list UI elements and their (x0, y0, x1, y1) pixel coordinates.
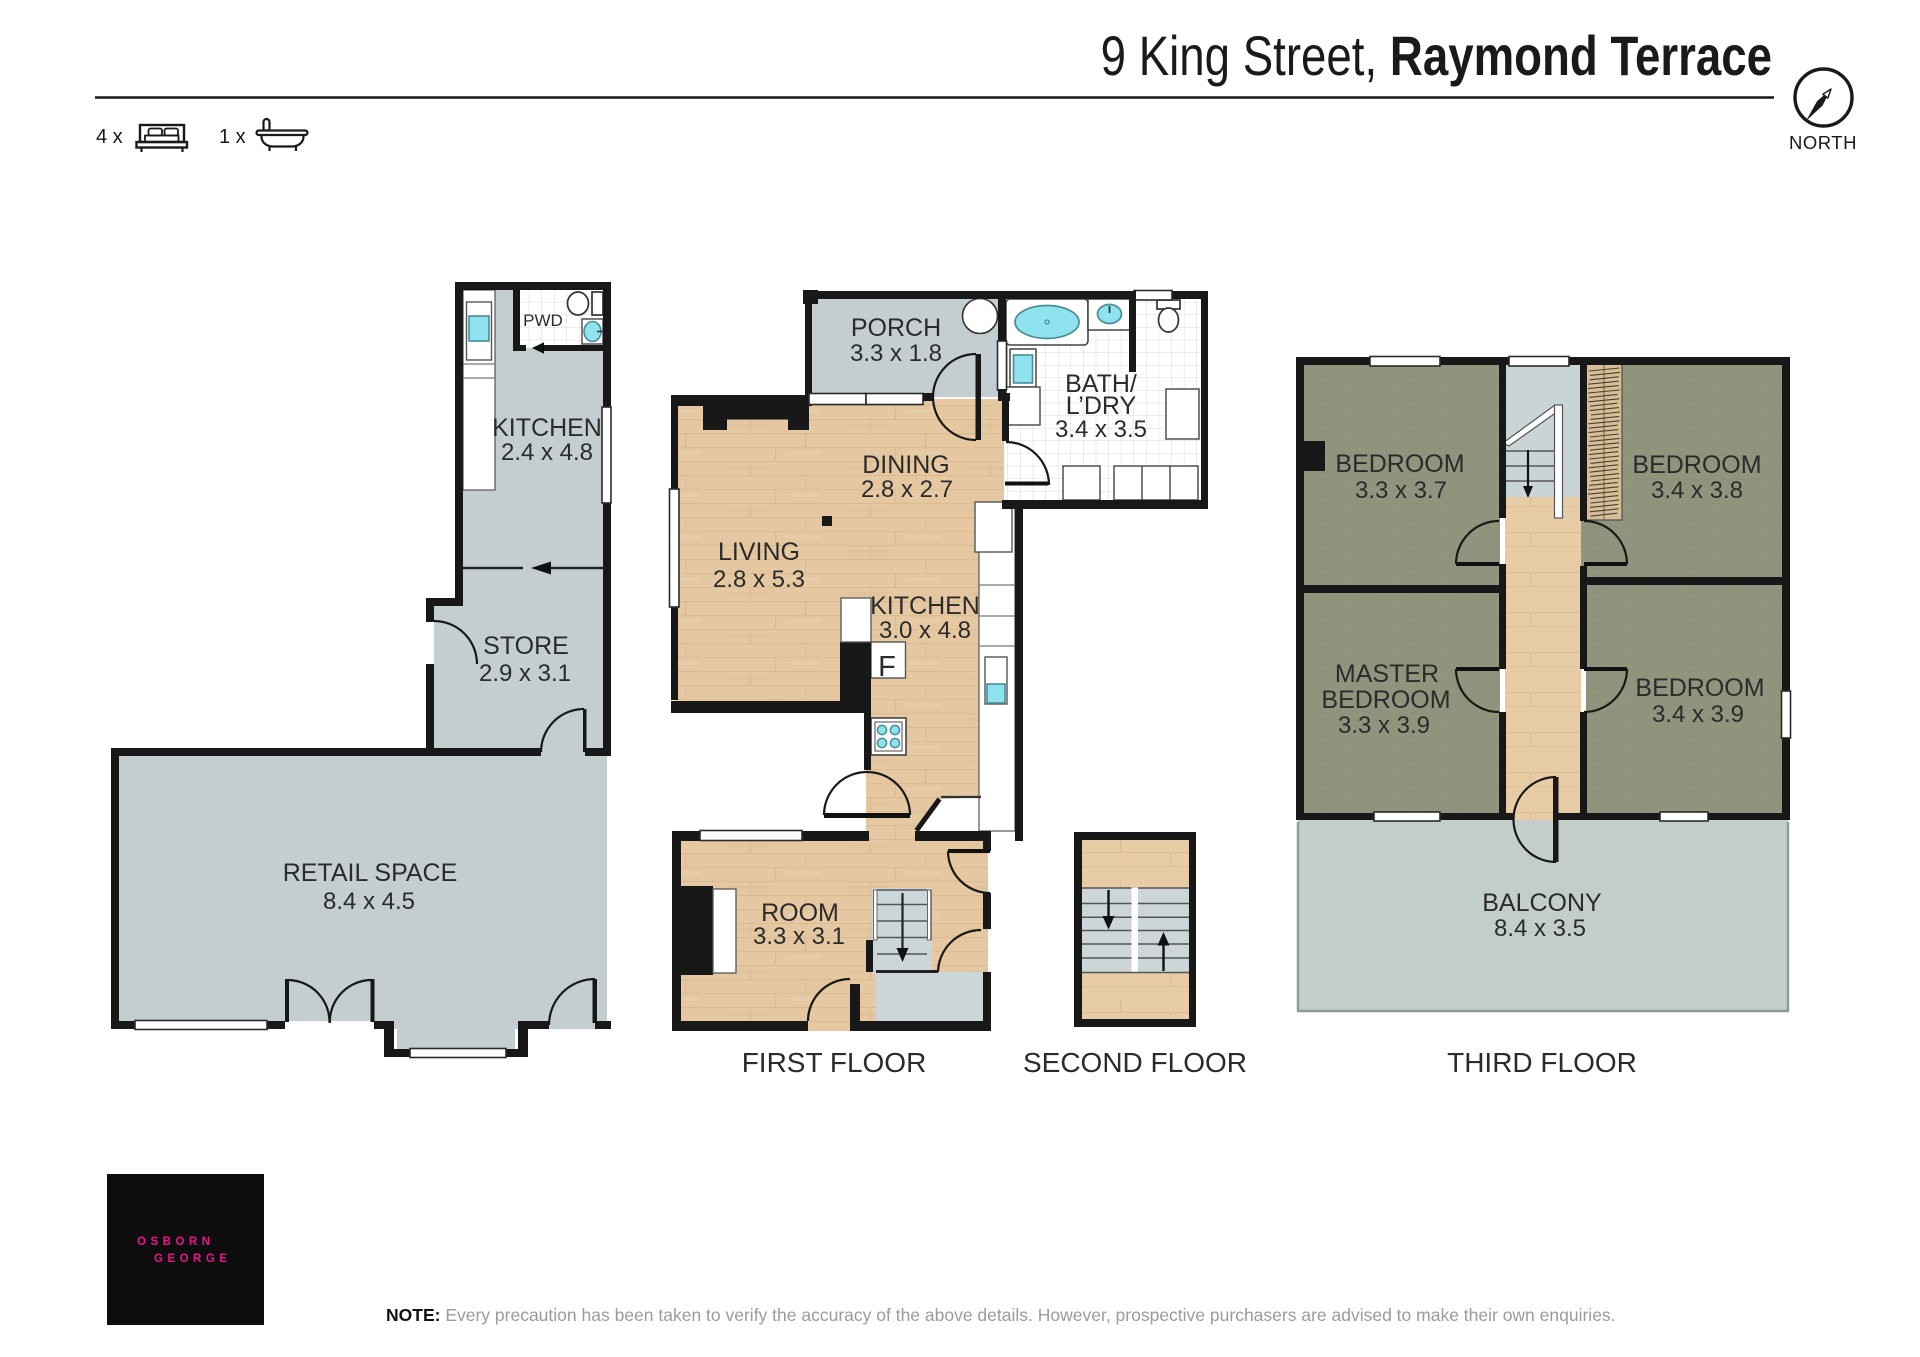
svg-text:F: F (878, 651, 896, 683)
svg-text:8.4 x 4.5: 8.4 x 4.5 (323, 888, 415, 915)
svg-text:BEDROOM: BEDROOM (1635, 674, 1764, 702)
svg-text:OSBORN: OSBORN (137, 1236, 214, 1248)
svg-text:DINING: DINING (862, 451, 950, 479)
svg-text:PWD: PWD (523, 311, 563, 330)
svg-text:NORTH: NORTH (1789, 132, 1857, 153)
svg-text:GEORGE: GEORGE (154, 1253, 231, 1265)
svg-text:2.8 x 2.7: 2.8 x 2.7 (861, 476, 953, 503)
svg-text:NOTE: Every precaution has bee: NOTE: Every precaution has been taken to… (386, 1305, 1616, 1325)
svg-text:3.3 x 3.1: 3.3 x 3.1 (753, 923, 845, 950)
svg-text:THIRD FLOOR: THIRD FLOOR (1447, 1047, 1637, 1078)
svg-text:2.9 x 3.1: 2.9 x 3.1 (479, 660, 571, 687)
svg-text:KITCHEN: KITCHEN (870, 592, 980, 620)
svg-text:8.4 x 3.5: 8.4 x 3.5 (1494, 915, 1586, 942)
svg-text:4 x: 4 x (96, 126, 123, 148)
svg-text:BEDROOM: BEDROOM (1321, 686, 1450, 714)
svg-text:3.3 x 1.8: 3.3 x 1.8 (850, 340, 942, 367)
svg-text:KITCHEN: KITCHEN (492, 414, 602, 442)
svg-text:SECOND FLOOR: SECOND FLOOR (1023, 1047, 1247, 1078)
svg-text:3.3 x 3.7: 3.3 x 3.7 (1355, 477, 1447, 504)
svg-text:2.4 x 4.8: 2.4 x 4.8 (501, 439, 593, 466)
svg-text:9 King Street, Raymond Terrace: 9 King Street, Raymond Terrace (1101, 25, 1772, 87)
svg-text:3.3 x 3.9: 3.3 x 3.9 (1338, 712, 1430, 739)
svg-text:MASTER: MASTER (1335, 660, 1439, 688)
svg-text:FIRST FLOOR: FIRST FLOOR (742, 1047, 927, 1078)
svg-text:3.0 x 4.8: 3.0 x 4.8 (879, 617, 971, 644)
svg-text:3.4 x 3.9: 3.4 x 3.9 (1652, 701, 1744, 728)
svg-text:BALCONY: BALCONY (1482, 889, 1602, 917)
svg-text:LIVING: LIVING (718, 538, 800, 566)
svg-text:PORCH: PORCH (851, 314, 941, 342)
svg-text:BEDROOM: BEDROOM (1632, 451, 1761, 479)
svg-text:2.8 x 5.3: 2.8 x 5.3 (713, 566, 805, 593)
svg-text:RETAIL SPACE: RETAIL SPACE (283, 859, 458, 887)
svg-text:3.4 x 3.8: 3.4 x 3.8 (1651, 477, 1743, 504)
svg-text:BEDROOM: BEDROOM (1335, 450, 1464, 478)
svg-text:1 x: 1 x (219, 126, 246, 148)
svg-text:STORE: STORE (483, 632, 569, 660)
svg-text:3.4 x 3.5: 3.4 x 3.5 (1055, 416, 1147, 443)
